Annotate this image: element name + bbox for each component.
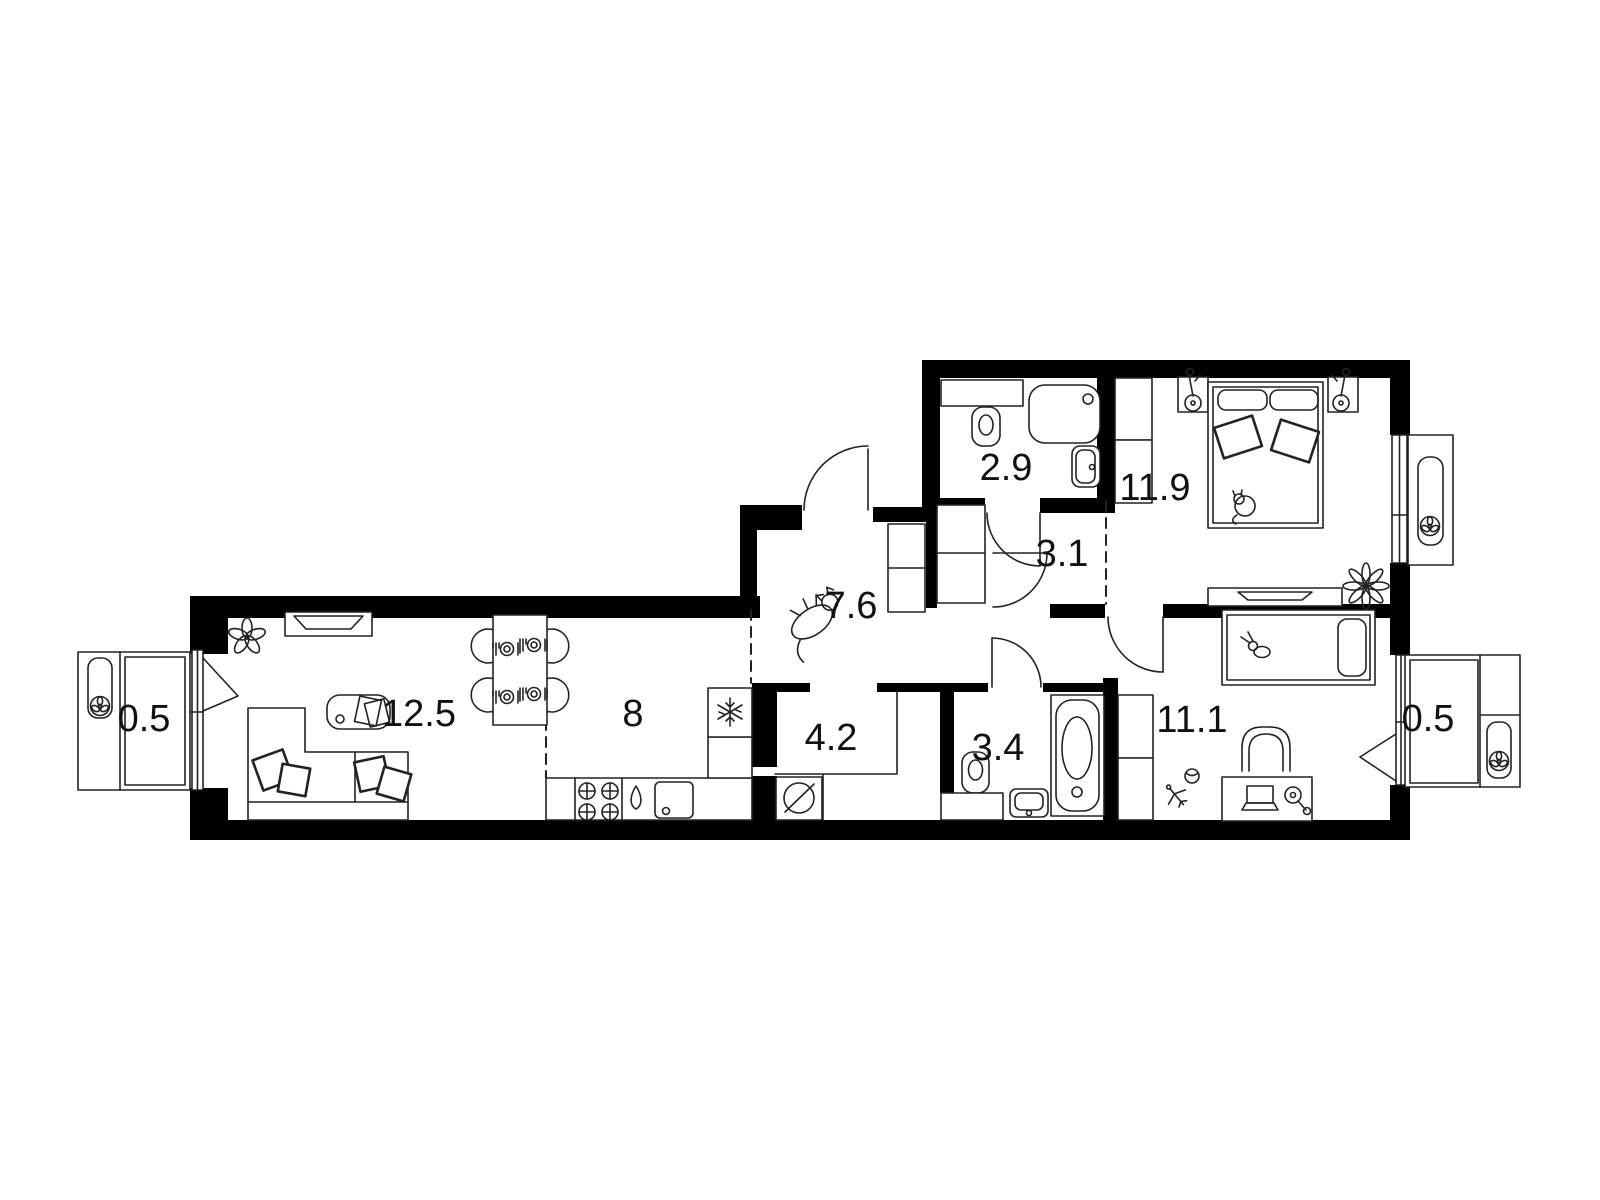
- desk: [1222, 777, 1312, 821]
- shower-tray: [1029, 385, 1100, 443]
- wall-entry-left: [740, 505, 802, 530]
- room-label-living-room: 12.5: [382, 693, 456, 735]
- wall: [740, 528, 757, 618]
- tv-console: [1208, 588, 1342, 606]
- wall-wardrobe-partition: [926, 510, 937, 608]
- room-label-corridor: 3.1: [1036, 533, 1089, 575]
- room-label-kitchen: 8: [622, 693, 643, 735]
- wardrobe: [937, 505, 985, 603]
- wall: [1390, 785, 1410, 840]
- room-label-bedroom: 11.9: [1119, 467, 1190, 509]
- room-label-children-room: 11.1: [1156, 699, 1227, 741]
- room-label-toilet: 2.9: [980, 447, 1033, 489]
- washbasin: [1072, 446, 1100, 487]
- bathtub: [1051, 695, 1104, 816]
- wall: [1390, 563, 1410, 655]
- room-label-balcony-left: 0.5: [118, 698, 171, 740]
- wardrobe: [1118, 695, 1153, 820]
- balcony-right-top-structure: [1408, 435, 1453, 565]
- double-bed: [1208, 382, 1323, 528]
- room-label-balcony-right: 0.5: [1402, 698, 1455, 740]
- dining-table: [493, 615, 547, 725]
- washing-machine: [776, 777, 822, 820]
- wall: [1050, 604, 1105, 618]
- wall-top: [922, 360, 1410, 378]
- wall: [940, 683, 954, 793]
- room-label-bathroom: 3.4: [972, 727, 1025, 769]
- wall: [190, 820, 1410, 840]
- wall: [1103, 678, 1118, 820]
- wall: [752, 776, 777, 820]
- wall: [922, 360, 940, 510]
- wall: [190, 596, 760, 618]
- room-label-hallway: 7.6: [825, 585, 878, 627]
- wardrobe: [888, 524, 925, 612]
- kitchen-counter: [546, 778, 752, 820]
- floor-plan: 0.5 12.5 8 7.6 4.2 3.4 2.9 3.1 11.9 11.1…: [0, 0, 1600, 1200]
- tv-console: [285, 612, 372, 636]
- coffee-table: [327, 695, 390, 729]
- wall: [752, 683, 777, 767]
- duct-niche: [941, 793, 1003, 820]
- floor-plan-canvas: 0.5 12.5 8 7.6 4.2 3.4 2.9 3.1 11.9 11.1…: [0, 0, 1600, 1200]
- toilet: [972, 407, 1000, 446]
- room-label-laundry: 4.2: [805, 717, 858, 759]
- counter: [941, 380, 1023, 406]
- balcony-door-window-left: [190, 650, 203, 790]
- wall: [1390, 360, 1410, 435]
- wall: [1040, 498, 1100, 513]
- kids-bed: [1222, 610, 1375, 685]
- wall: [877, 683, 938, 692]
- wall: [1097, 360, 1115, 513]
- wall: [752, 683, 810, 692]
- bedroom-window: [1392, 435, 1407, 563]
- bathroom-sink: [1010, 789, 1048, 817]
- kitchen-counter-column: [708, 737, 752, 778]
